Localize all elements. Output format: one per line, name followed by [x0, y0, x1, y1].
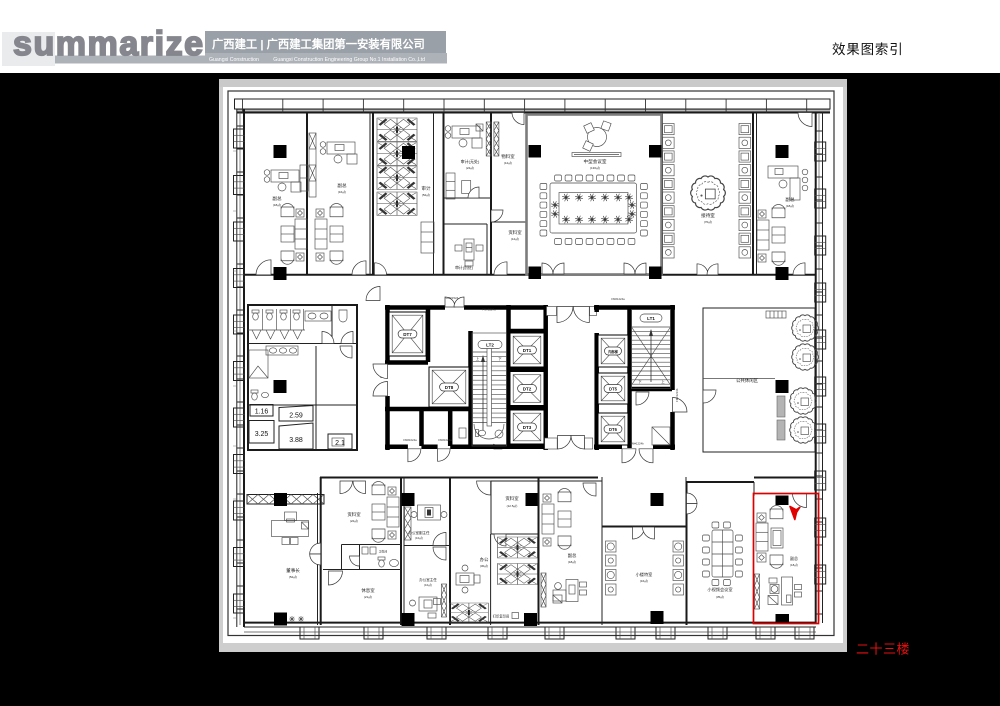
svg-text:FM#1024a: FM#1024a [403, 438, 417, 442]
svg-text:FM#1524: FM#1524 [446, 296, 459, 300]
svg-text:卫生间: 卫生间 [379, 550, 388, 554]
svg-text:副总: 副总 [337, 182, 347, 189]
svg-text:(18㎡): (18㎡) [568, 559, 576, 564]
svg-text:DT2: DT2 [523, 386, 532, 391]
svg-text:办公: 办公 [480, 556, 489, 563]
svg-text:(18㎡): (18㎡) [273, 202, 281, 207]
svg-text:小楼特室: 小楼特室 [636, 571, 653, 578]
svg-text:审计(无处): 审计(无处) [461, 158, 480, 164]
svg-text:LT2: LT2 [486, 343, 494, 348]
svg-text:(70㎡): (70㎡) [704, 219, 712, 224]
svg-text:(16㎡): (16㎡) [338, 189, 346, 194]
svg-text:LT1: LT1 [647, 316, 655, 321]
svg-text:资料室: 资料室 [505, 495, 519, 502]
svg-text:(18㎡): (18㎡) [786, 203, 794, 208]
svg-text:副总: 副总 [568, 552, 577, 559]
svg-text:(52㎡): (52㎡) [422, 192, 430, 197]
svg-text:(30㎡): (30㎡) [480, 563, 488, 568]
svg-text:(130㎡): (130㎡) [590, 165, 600, 170]
svg-text:休息室: 休息室 [361, 587, 375, 594]
svg-text:副总: 副总 [785, 196, 795, 203]
svg-text:副总: 副总 [790, 555, 798, 561]
svg-text:(10㎡): (10㎡) [424, 583, 432, 587]
svg-text:接待室: 接待室 [701, 212, 715, 219]
svg-text:(24㎡): (24㎡) [466, 165, 474, 170]
svg-text:办公室主任: 办公室主任 [419, 577, 437, 582]
svg-text:(21㎡): (21㎡) [364, 594, 372, 599]
svg-text:DT7: DT7 [403, 332, 412, 337]
svg-text:副总: 副总 [272, 195, 282, 202]
svg-text:FM#1224a: FM#1224a [482, 308, 496, 312]
svg-text:3.25: 3.25 [255, 431, 269, 438]
svg-text:FM#1024a: FM#1024a [438, 438, 452, 442]
svg-text:(12.5㎡): (12.5㎡) [507, 503, 518, 508]
svg-text:DT5: DT5 [609, 386, 618, 391]
svg-text:FM#1224b: FM#1224b [675, 388, 679, 402]
svg-text:审计(别处): 审计(别处) [455, 265, 473, 270]
svg-text:Guangxi Construction: Guangxi Construction Guangxi Constructio… [209, 57, 425, 63]
svg-text:(22㎡): (22㎡) [350, 518, 358, 523]
svg-text:审计: 审计 [421, 185, 431, 192]
svg-text:(12㎡): (12㎡) [511, 236, 519, 241]
svg-text:summarize: summarize [13, 25, 205, 63]
svg-text:DT3: DT3 [523, 425, 532, 430]
svg-text:(35㎡): (35㎡) [716, 594, 724, 599]
svg-text:广西建工 | 广西建工集团第一安装有限公司: 广西建工 | 广西建工集团第一安装有限公司 [212, 37, 425, 51]
svg-text:DT8: DT8 [445, 385, 454, 390]
svg-text:DT1: DT1 [523, 348, 532, 353]
svg-text:2.59: 2.59 [289, 413, 303, 420]
svg-text:公共休闲区: 公共休闲区 [736, 377, 759, 384]
svg-text:1.16: 1.16 [255, 409, 269, 416]
svg-text:打印复印间: 打印复印间 [493, 614, 509, 619]
svg-text:二十三楼: 二十三楼 [856, 642, 910, 657]
svg-text:(10㎡): (10㎡) [415, 536, 423, 540]
svg-text:(12㎡): (12㎡) [504, 160, 512, 165]
svg-text:中型会议室: 中型会议室 [584, 158, 607, 165]
svg-text:资料室: 资料室 [508, 229, 522, 236]
svg-text:(18㎡): (18㎡) [790, 563, 798, 567]
svg-text:DT6: DT6 [609, 427, 618, 432]
svg-text:办公室副主任: 办公室副主任 [409, 530, 430, 535]
svg-text:3.88: 3.88 [289, 437, 303, 444]
svg-text:(16㎡): (16㎡) [640, 578, 648, 583]
svg-text:FM#1224b: FM#1224b [630, 442, 644, 446]
svg-text:物料室: 物料室 [501, 153, 515, 160]
svg-text:FM#1224a: FM#1224a [611, 297, 625, 301]
svg-text:小视频会议室: 小视频会议室 [707, 586, 732, 593]
svg-text:董事长: 董事长 [286, 567, 300, 574]
svg-text:资料室: 资料室 [347, 511, 361, 518]
svg-text:效果图索引: 效果图索引 [832, 42, 904, 57]
svg-text:内部梯: 内部梯 [608, 349, 618, 354]
svg-text:(52㎡): (52㎡) [289, 574, 297, 579]
